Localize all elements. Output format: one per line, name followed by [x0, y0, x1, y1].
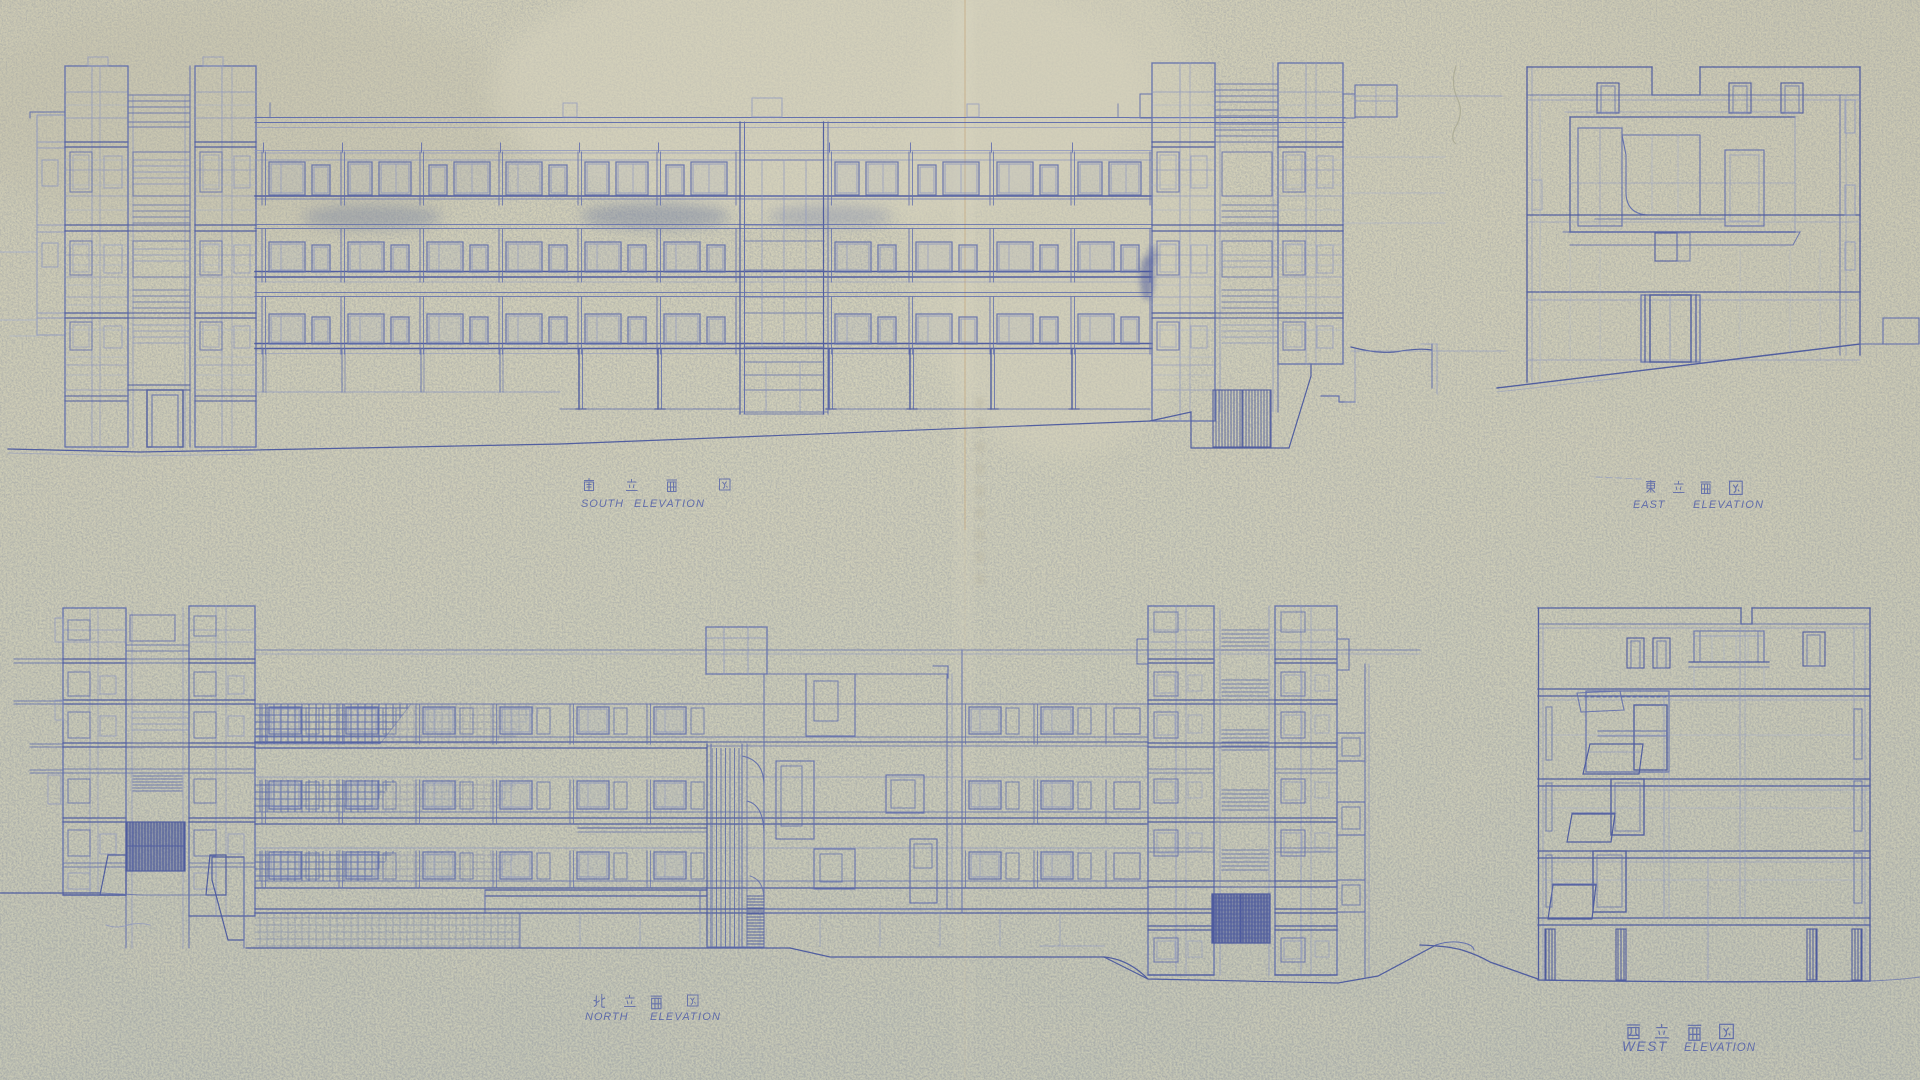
svg-text:EAST: EAST [1633, 499, 1666, 511]
svg-text:SOUTH: SOUTH [581, 498, 624, 510]
svg-text:ELEVATION: ELEVATION [650, 1011, 721, 1023]
svg-text:NORTH: NORTH [585, 1011, 628, 1023]
svg-text:ELEVATION: ELEVATION [1684, 1042, 1756, 1054]
svg-text:WEST: WEST [1622, 1039, 1668, 1054]
svg-text:ELEVATION: ELEVATION [634, 498, 705, 510]
svg-text:ELEVATION: ELEVATION [1693, 499, 1764, 511]
